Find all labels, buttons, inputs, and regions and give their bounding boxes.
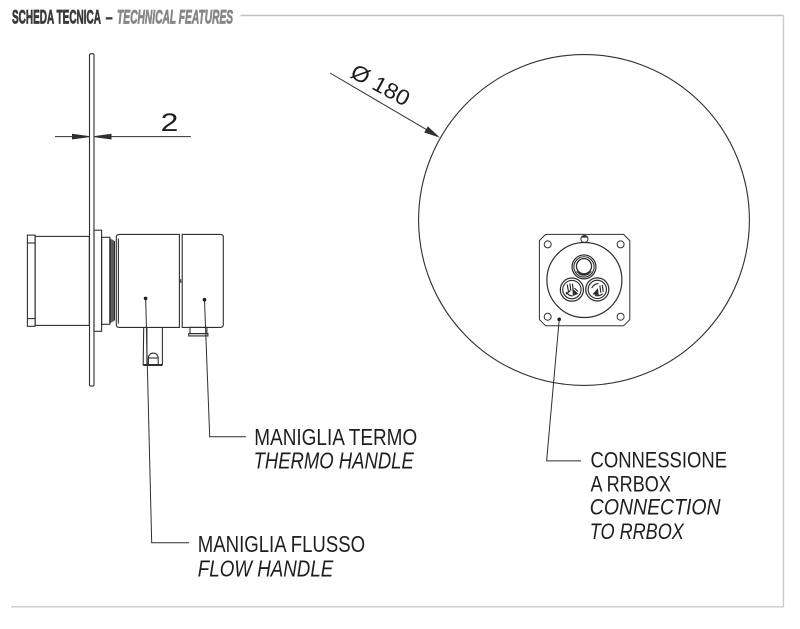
svg-text:-: - — [105, 6, 114, 28]
svg-text:TO RRBOX: TO RRBOX — [590, 521, 685, 545]
svg-text:FLOW HANDLE: FLOW HANDLE — [198, 557, 334, 582]
svg-text:CONNESSIONE: CONNESSIONE — [591, 449, 728, 473]
svg-text:THERMO HANDLE: THERMO HANDLE — [254, 449, 415, 474]
svg-text:CONNECTION: CONNECTION — [590, 496, 721, 520]
svg-text:MANIGLIA FLUSSO: MANIGLIA FLUSSO — [198, 532, 365, 557]
svg-text:2: 2 — [161, 109, 179, 137]
svg-text:MANIGLIA TERMO: MANIGLIA TERMO — [254, 424, 417, 450]
svg-text:TECHNICAL FEATURES: TECHNICAL FEATURES — [117, 7, 234, 28]
svg-text:SCHEDA TECNICA: SCHEDA TECNICA — [12, 7, 101, 28]
svg-text:A RRBOX: A RRBOX — [591, 473, 671, 497]
